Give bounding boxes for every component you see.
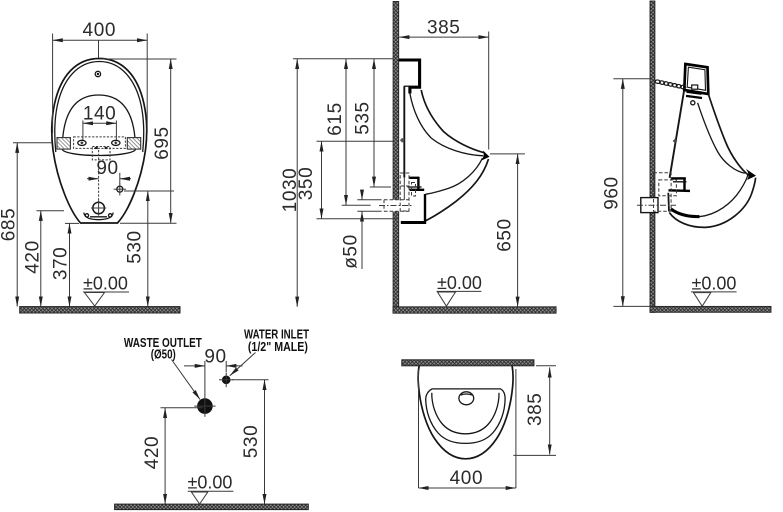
svg-text:140: 140 xyxy=(83,103,117,124)
svg-text:400: 400 xyxy=(83,20,117,41)
svg-text:±0.00: ±0.00 xyxy=(83,274,128,294)
svg-text:(Ø50): (Ø50) xyxy=(151,347,176,361)
svg-text:420: 420 xyxy=(22,240,43,274)
svg-text:385: 385 xyxy=(525,393,546,427)
svg-text:±0.00: ±0.00 xyxy=(437,273,482,293)
svg-text:400: 400 xyxy=(450,468,484,489)
svg-text:(1/2" MALE): (1/2" MALE) xyxy=(248,340,308,354)
svg-text:±0.00: ±0.00 xyxy=(188,473,233,493)
svg-text:530: 530 xyxy=(125,230,146,264)
svg-text:535: 535 xyxy=(353,101,374,135)
svg-text:385: 385 xyxy=(427,18,461,39)
svg-text:±0.00: ±0.00 xyxy=(692,274,737,294)
svg-text:370: 370 xyxy=(50,247,71,281)
svg-text:90: 90 xyxy=(204,347,226,368)
svg-text:ø50: ø50 xyxy=(341,234,362,269)
svg-text:650: 650 xyxy=(495,218,516,252)
svg-text:530: 530 xyxy=(241,425,262,459)
svg-text:615: 615 xyxy=(325,102,346,136)
svg-text:695: 695 xyxy=(152,126,173,160)
svg-text:420: 420 xyxy=(142,436,163,470)
svg-text:960: 960 xyxy=(602,176,623,210)
svg-text:350: 350 xyxy=(296,167,317,201)
svg-text:90: 90 xyxy=(96,158,118,179)
svg-text:685: 685 xyxy=(0,208,19,242)
